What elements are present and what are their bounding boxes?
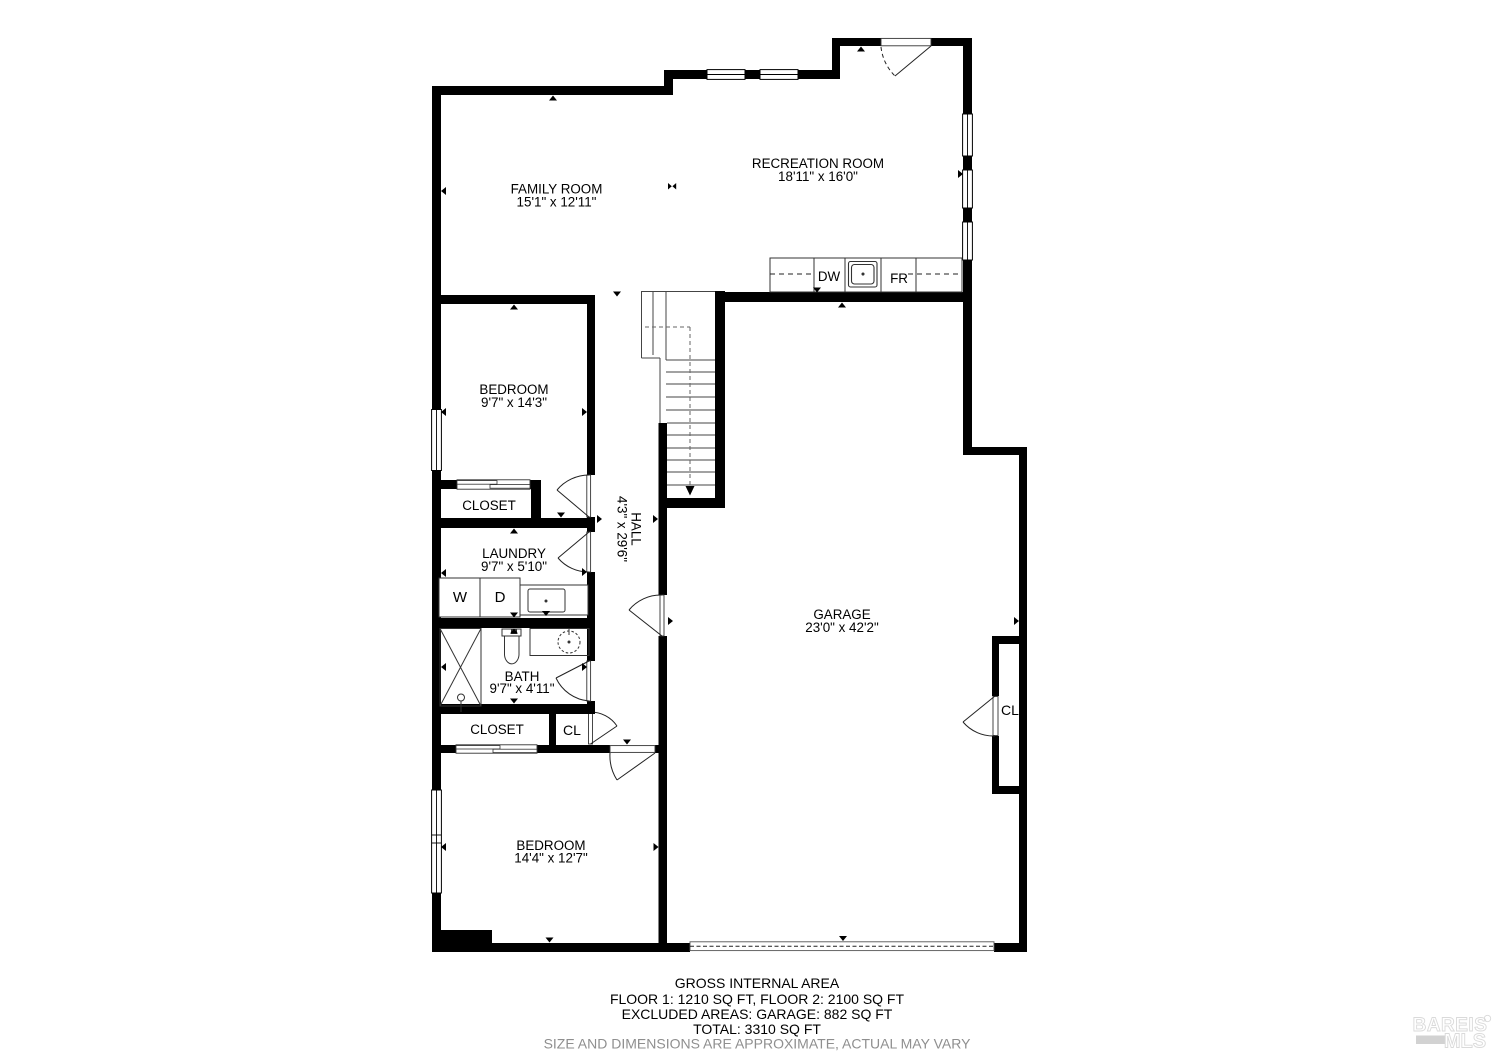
svg-text:23'0" x 42'2": 23'0" x 42'2" — [805, 620, 879, 635]
svg-text:MLS: MLS — [1444, 1031, 1486, 1053]
svg-text:W: W — [453, 589, 468, 606]
svg-text:9'7" x 4'11": 9'7" x 4'11" — [490, 681, 555, 696]
svg-text:FLOOR 1: 1210 SQ FT, FLOOR 2:: FLOOR 1: 1210 SQ FT, FLOOR 2: 2100 SQ FT — [610, 991, 905, 1007]
svg-text:CL: CL — [1001, 702, 1019, 718]
svg-text:9'7" x 5'10": 9'7" x 5'10" — [481, 559, 547, 574]
svg-text:CL: CL — [563, 722, 581, 738]
svg-text:15'1" x 12'11": 15'1" x 12'11" — [517, 195, 597, 210]
svg-text:4'3" x 29'6": 4'3" x 29'6" — [615, 496, 630, 562]
svg-text:EXCLUDED AREAS: GARAGE: 882 SQ: EXCLUDED AREAS: GARAGE: 882 SQ FT — [622, 1006, 893, 1022]
svg-text:9'7" x 14'3": 9'7" x 14'3" — [481, 395, 547, 410]
svg-text:14'4" x 12'7": 14'4" x 12'7" — [514, 851, 588, 866]
svg-text:GROSS INTERNAL AREA: GROSS INTERNAL AREA — [675, 975, 840, 991]
svg-text:HALL: HALL — [629, 512, 644, 546]
svg-text:CLOSET: CLOSET — [470, 722, 524, 737]
svg-text:DW: DW — [818, 269, 841, 284]
svg-text:FR: FR — [890, 271, 908, 286]
svg-text:18'11" x 16'0": 18'11" x 16'0" — [778, 169, 858, 184]
svg-text:SIZE AND DIMENSIONS ARE APPROX: SIZE AND DIMENSIONS ARE APPROXIMATE, ACT… — [544, 1036, 972, 1052]
svg-text:CLOSET: CLOSET — [462, 498, 516, 513]
svg-text:D: D — [495, 589, 506, 606]
